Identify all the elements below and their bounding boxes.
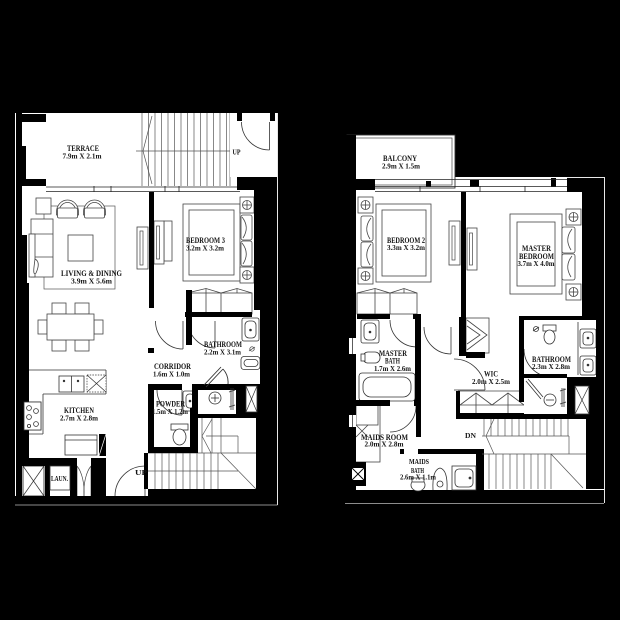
svg-text:LAUN.: LAUN. <box>51 475 68 483</box>
svg-text:1.5m X 1.2m: 1.5m X 1.2m <box>152 407 189 416</box>
svg-text:7.9m X 2.1m: 7.9m X 2.1m <box>63 152 103 161</box>
svg-text:3.2m X 3.2m: 3.2m X 3.2m <box>186 244 225 253</box>
svg-text:2.6m X 1.1m: 2.6m X 1.1m <box>400 474 436 482</box>
svg-text:MAIDS: MAIDS <box>409 458 429 466</box>
svg-text:2.2m X 3.1m: 2.2m X 3.1m <box>204 348 242 357</box>
svg-text:1.7m X 2.6m: 1.7m X 2.6m <box>374 364 412 373</box>
svg-text:DN: DN <box>465 432 476 440</box>
svg-text:3.7m X 4.0m: 3.7m X 4.0m <box>518 259 556 268</box>
svg-text:2.3m X 2.8m: 2.3m X 2.8m <box>532 362 571 371</box>
svg-text:2.0m X 2.8m: 2.0m X 2.8m <box>365 440 405 449</box>
svg-text:3.9m X 5.6m: 3.9m X 5.6m <box>71 277 113 286</box>
svg-text:UP: UP <box>233 149 242 157</box>
svg-text:3.3m X 3.2m: 3.3m X 3.2m <box>387 243 426 252</box>
svg-text:2.7m X 2.8m: 2.7m X 2.8m <box>60 414 99 423</box>
svg-text:2.0m X 2.5m: 2.0m X 2.5m <box>472 377 511 386</box>
svg-text:2.9m X 1.5m: 2.9m X 1.5m <box>382 162 421 171</box>
svg-text:UP: UP <box>135 469 148 477</box>
svg-text:1.6m X 1.0m: 1.6m X 1.0m <box>153 370 191 379</box>
